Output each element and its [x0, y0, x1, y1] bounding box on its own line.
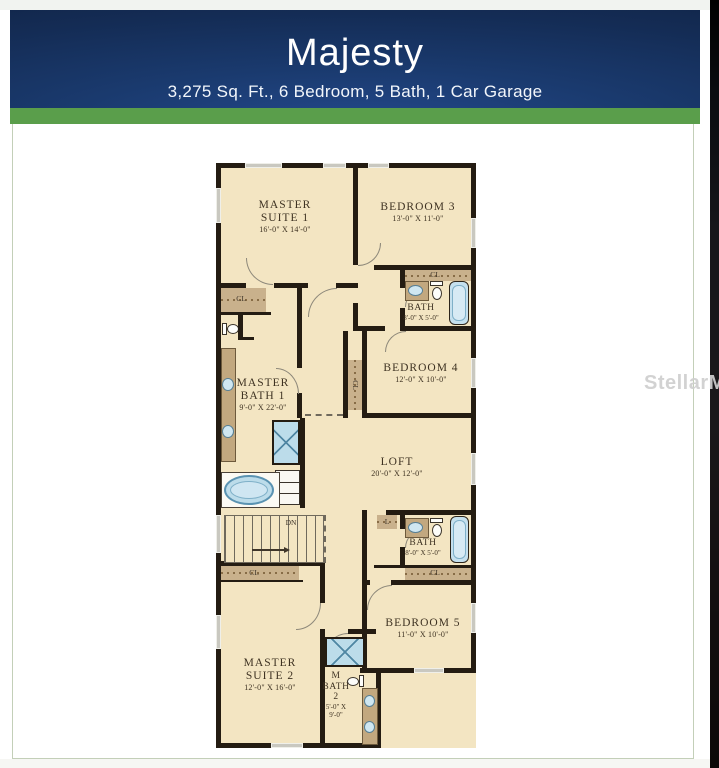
stair-direction-line [252, 549, 284, 551]
stairs-down-label: DN [278, 519, 304, 527]
room-name: BATH 1 [223, 390, 303, 403]
wall-br5-top [362, 580, 370, 585]
plan-title: Majesty [10, 32, 700, 75]
toilet-icon [432, 287, 442, 300]
wall-ms1-bottom [336, 283, 358, 288]
wall-toilet-nook [238, 337, 254, 340]
window [368, 163, 389, 168]
label-master-suite-2: MASTER SUITE 2 12'-0" X 16'-0" [225, 657, 315, 693]
sink-icon [364, 695, 375, 707]
room-name: LOFT [347, 456, 447, 469]
wall-bath1-bottom [353, 326, 385, 331]
label-bath-upper: BATH 8'-0" X 5'-0" [391, 303, 451, 322]
room-dims: 11'-0" X 10'-0" [368, 630, 478, 640]
room-dims: 9'-0" [314, 711, 358, 720]
room-name: 2 [314, 692, 358, 703]
room-name: BEDROOM 5 [368, 617, 478, 630]
closet-label: CL [246, 569, 262, 577]
plan-header-banner: Majesty 3,275 Sq. Ft., 6 Bedroom, 5 Bath… [10, 10, 700, 108]
wall-bath1-bottom [405, 326, 471, 331]
room-dims: 8'-0" X 5'-0" [391, 314, 451, 323]
label-m-bath-2: M BATH 2 5'-0" X 9'-0" [314, 671, 358, 720]
sink-icon [222, 425, 234, 438]
room-name: BATH [393, 538, 453, 549]
room-dims: 16'-0" X 14'-0" [235, 225, 335, 235]
stellar-mls-watermark: StellarMLS [644, 372, 719, 395]
label-bedroom-4: BEDROOM 4 12'-0" X 10'-0" [366, 362, 476, 385]
door-arc-br5 [367, 585, 392, 610]
room-name: MASTER [235, 199, 335, 212]
bottom-margin-strip [0, 759, 719, 768]
bathtub-icon [224, 475, 274, 505]
window [271, 743, 303, 748]
sink-icon [364, 721, 375, 733]
room-name: BATH [391, 303, 451, 314]
top-margin-strip [0, 0, 719, 10]
label-bedroom-5: BEDROOM 5 11'-0" X 10'-0" [368, 617, 478, 640]
room-name: BEDROOM 4 [366, 362, 476, 375]
room-name: MASTER [223, 377, 303, 390]
wall-br5-top [391, 580, 476, 585]
closet-label: CL [427, 569, 443, 577]
room-name: BATH [314, 682, 358, 693]
wall-ms2-right [320, 561, 325, 603]
plan-subtitle: 3,275 Sq. Ft., 6 Bedroom, 5 Bath, 1 Car … [10, 82, 700, 102]
label-bath-lower: BATH 8'-0" X 5'-0" [393, 538, 453, 557]
window [216, 615, 221, 649]
toilet-icon [359, 675, 364, 687]
room-name: M [314, 671, 358, 682]
door-arc-ms1-left [246, 258, 273, 285]
wall-closet-ms1 [221, 312, 271, 315]
wall-closet-ms2 [221, 580, 303, 582]
bathtub-icon [449, 281, 469, 325]
toilet-icon [430, 518, 443, 523]
green-accent-band [10, 108, 700, 124]
toilet-icon [430, 281, 443, 286]
window [471, 453, 476, 485]
room-dims: 12'-0" X 16'-0" [225, 683, 315, 693]
wall-toilet-nook [238, 312, 243, 337]
wall-masterbath-right [300, 418, 305, 508]
room-dims: 9'-0" X 22'-0" [223, 403, 303, 413]
linen-label: L [379, 518, 395, 526]
wall-loft-top [362, 413, 476, 418]
window [216, 188, 221, 223]
stair-rail-dashed [324, 515, 326, 563]
room-dims: 13'-0" X 11'-0" [363, 214, 473, 224]
closet-label: CL [233, 295, 249, 303]
label-master-suite-1: MASTER SUITE 1 16'-0" X 14'-0" [235, 199, 335, 235]
door-arc-br4 [385, 331, 406, 352]
window [216, 515, 221, 553]
sink-icon [408, 285, 423, 296]
door-arc-ms2 [296, 603, 321, 630]
stair-direction-arrow [284, 547, 290, 553]
second-floor-plan: MASTER SUITE 1 16'-0" X 14'-0" BEDROOM 3… [216, 163, 476, 748]
room-dims: 20'-0" X 12'-0" [347, 469, 447, 479]
room-name: BEDROOM 3 [363, 201, 473, 214]
door-arc-ms1-hall [308, 288, 337, 317]
label-bedroom-3: BEDROOM 3 13'-0" X 11'-0" [363, 201, 473, 224]
window [414, 668, 444, 673]
window [245, 163, 282, 168]
room-dims: 5'-0" X [314, 703, 358, 712]
floor-plan-page: { "header": { "title": "Majesty", "subti… [0, 0, 719, 768]
closet-label: CL [427, 271, 443, 279]
staircase [224, 515, 324, 563]
shower-icon [325, 637, 365, 667]
wall-ms1-bottom [274, 283, 308, 288]
toilet-icon [432, 524, 442, 537]
room-dims: 8'-0" X 5'-0" [393, 549, 453, 558]
shower-icon [272, 420, 300, 465]
label-master-bath-1: MASTER BATH 1 9'-0" X 22'-0" [223, 377, 303, 413]
room-name: SUITE 1 [235, 212, 335, 225]
wall-masterbath-right [297, 288, 302, 368]
window [323, 163, 346, 168]
label-loft: LOFT 20'-0" X 12'-0" [347, 456, 447, 479]
closet-label: CL [351, 377, 359, 393]
door-arc-br3 [358, 243, 381, 266]
room-name: SUITE 2 [225, 670, 315, 683]
room-name: MASTER [225, 657, 315, 670]
sink-icon [408, 522, 423, 533]
room-dims: 12'-0" X 10'-0" [366, 375, 476, 385]
open-rail-dashed [305, 414, 343, 416]
